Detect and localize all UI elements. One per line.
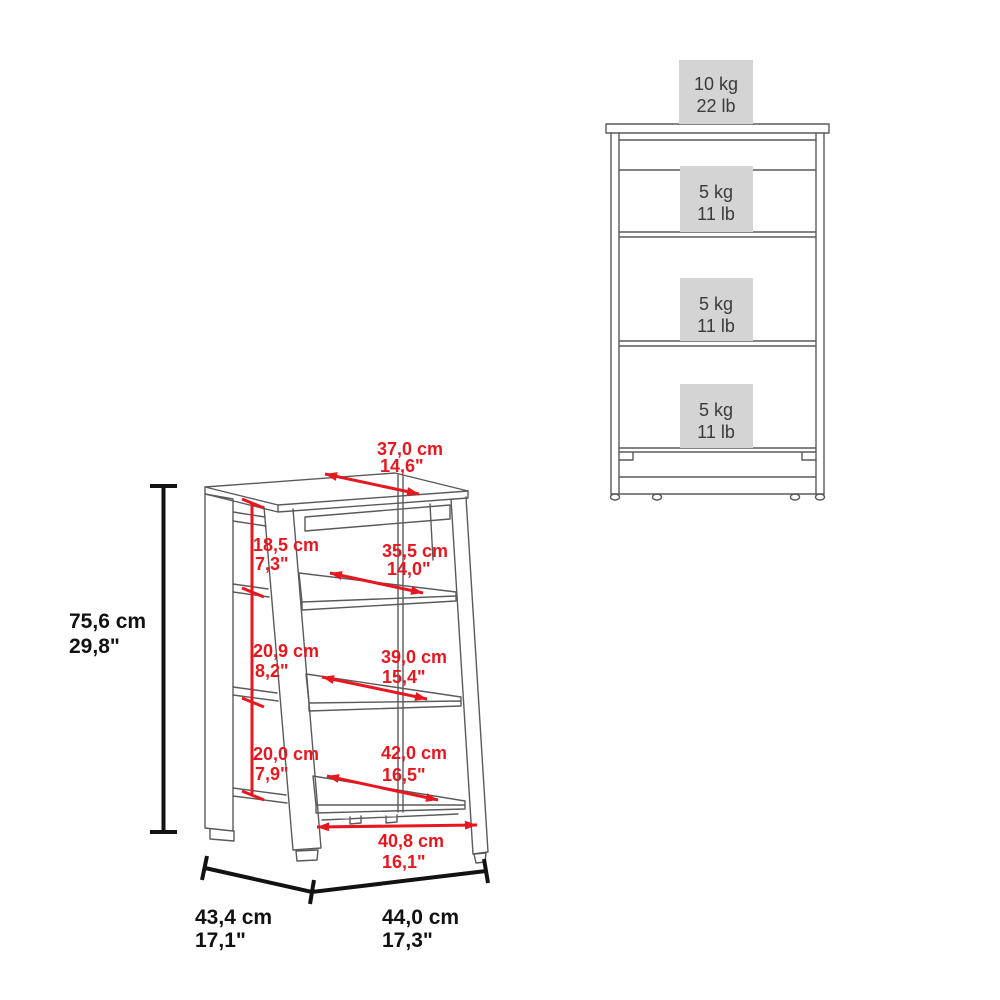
front-shelf-2 — [619, 341, 816, 346]
compartment-3-height-in: 7,9" — [255, 764, 289, 784]
shelf-1-depth-in: 14,0" — [387, 559, 431, 579]
back-panel — [205, 494, 233, 831]
width-in: 17,3" — [382, 929, 433, 952]
product-dimension-sheet: 10 kg 22 lb 5 kg 11 lb 5 kg 11 lb 5 kg 1… — [0, 0, 1000, 1000]
shelf-1-capacity-lb: 11 lb — [697, 204, 735, 224]
front-foot-4 — [816, 494, 825, 500]
front-foot-2 — [653, 494, 662, 500]
shelf-3-capacity-kg: 5 kg — [699, 400, 733, 420]
capacity-boxes — [679, 60, 753, 448]
front-shelf-1 — [619, 232, 816, 237]
compartment-1-height-in: 7,3" — [255, 554, 289, 574]
shelf-1-capacity-kg: 5 kg — [699, 182, 733, 202]
front-shelf-3 — [619, 448, 816, 452]
height-in: 29,8" — [69, 635, 120, 658]
front-foot-1 — [611, 494, 620, 500]
shelf-dimension-diagram: 10 kg 22 lb 5 kg 11 lb 5 kg 11 lb 5 kg 1… — [0, 0, 1000, 1000]
height-cm: 75,6 cm — [69, 610, 146, 633]
base-width-arrow — [317, 825, 477, 827]
compartment-1-height-cm: 18,5 cm — [253, 535, 319, 555]
shelf-3-depth-cm: 42,0 cm — [381, 743, 447, 763]
base-rail — [322, 814, 458, 824]
front-right-side-panel — [816, 133, 824, 494]
front-top-board — [606, 124, 829, 133]
front-foot-3 — [791, 494, 800, 500]
shelf-3-depth-in: 16,5" — [382, 765, 426, 785]
left-leg-foot — [296, 850, 318, 861]
width-cm: 44,0 cm — [382, 906, 459, 929]
shelf-3-capacity-lb: 11 lb — [697, 422, 735, 442]
footprint-dimension-lines — [202, 856, 488, 904]
front-left-side-panel — [611, 133, 619, 494]
depth-in: 17,1" — [195, 929, 246, 952]
shelf-2-depth-in: 15,4" — [382, 667, 426, 687]
top-capacity-lb: 22 lb — [696, 96, 735, 116]
compartment-2-height-in: 8,2" — [255, 661, 289, 681]
compartment-2-height-cm: 20,9 cm — [253, 641, 319, 661]
capacity-labels: 10 kg 22 lb 5 kg 11 lb 5 kg 11 lb 5 kg 1… — [679, 60, 753, 448]
shelf-2-capacity-lb: 11 lb — [697, 316, 735, 336]
perspective-view-structure — [205, 473, 488, 863]
apron-left — [233, 512, 266, 526]
depth-cm: 43,4 cm — [195, 906, 272, 929]
shelf-2-depth-cm: 39,0 cm — [381, 647, 447, 667]
shelf-2-capacity-kg: 5 kg — [699, 294, 733, 314]
top-capacity-kg: 10 kg — [694, 74, 738, 94]
shelf-1-depth-cm: 35,5 cm — [382, 541, 448, 561]
right-front-leg — [451, 497, 488, 854]
compartment-3-height-cm: 20,0 cm — [253, 744, 319, 764]
base-width-cm: 40,8 cm — [378, 831, 444, 851]
top-depth-in: 14,6" — [380, 456, 424, 476]
base-width-in: 16,1" — [382, 852, 426, 872]
front-kick-panel — [619, 453, 816, 477]
height-dimension-line — [150, 486, 177, 832]
